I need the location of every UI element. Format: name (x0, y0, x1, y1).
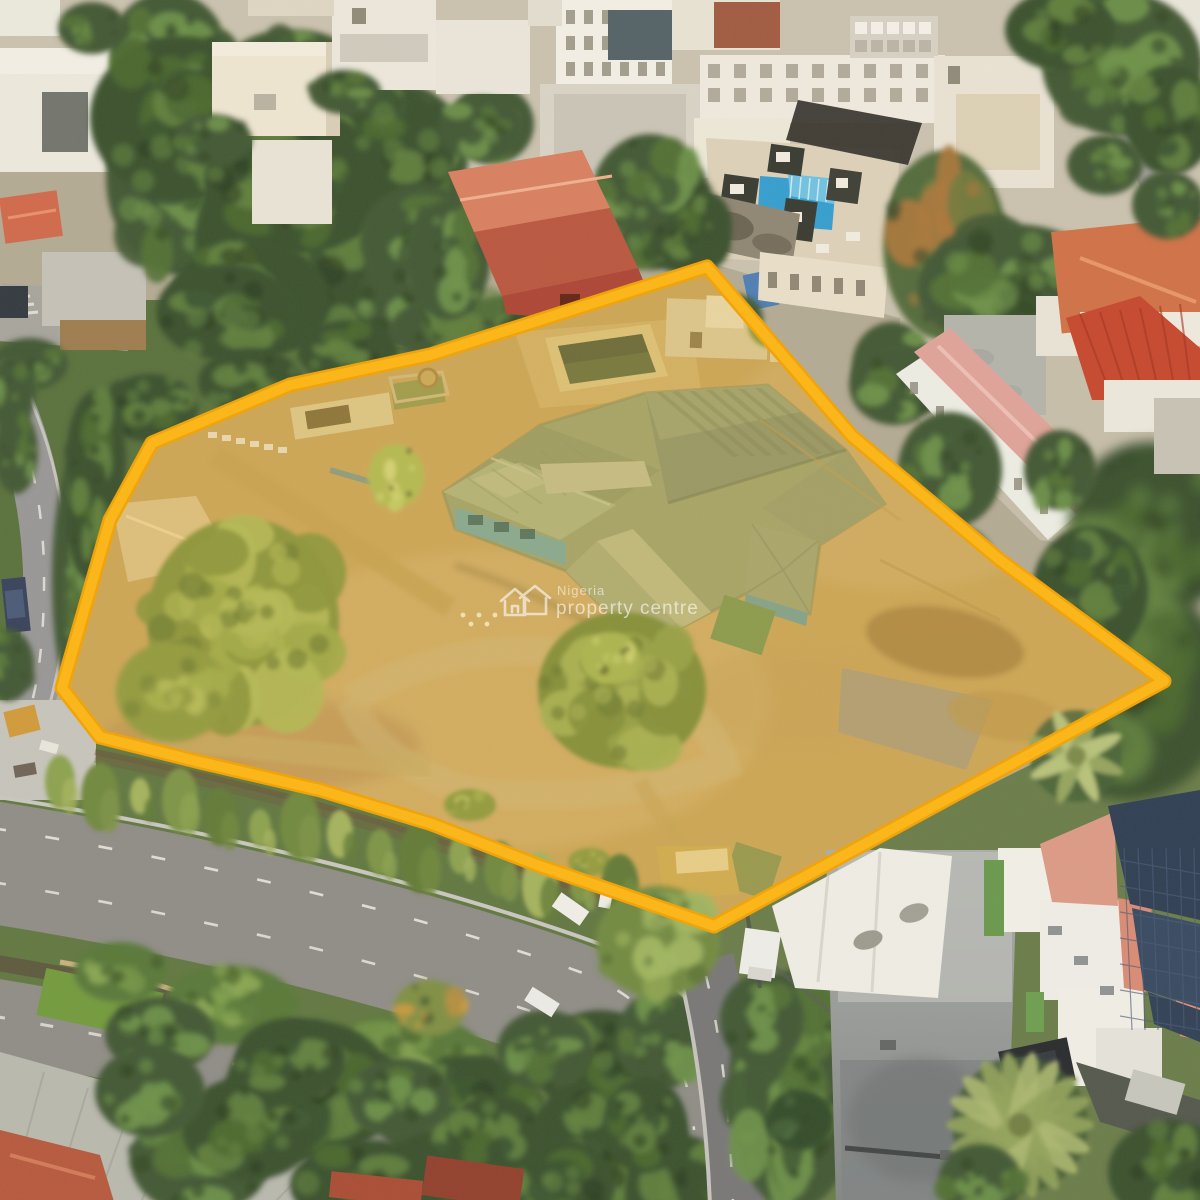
svg-text:Nigeria: Nigeria (557, 583, 605, 598)
svg-text:property centre: property centre (556, 598, 699, 619)
